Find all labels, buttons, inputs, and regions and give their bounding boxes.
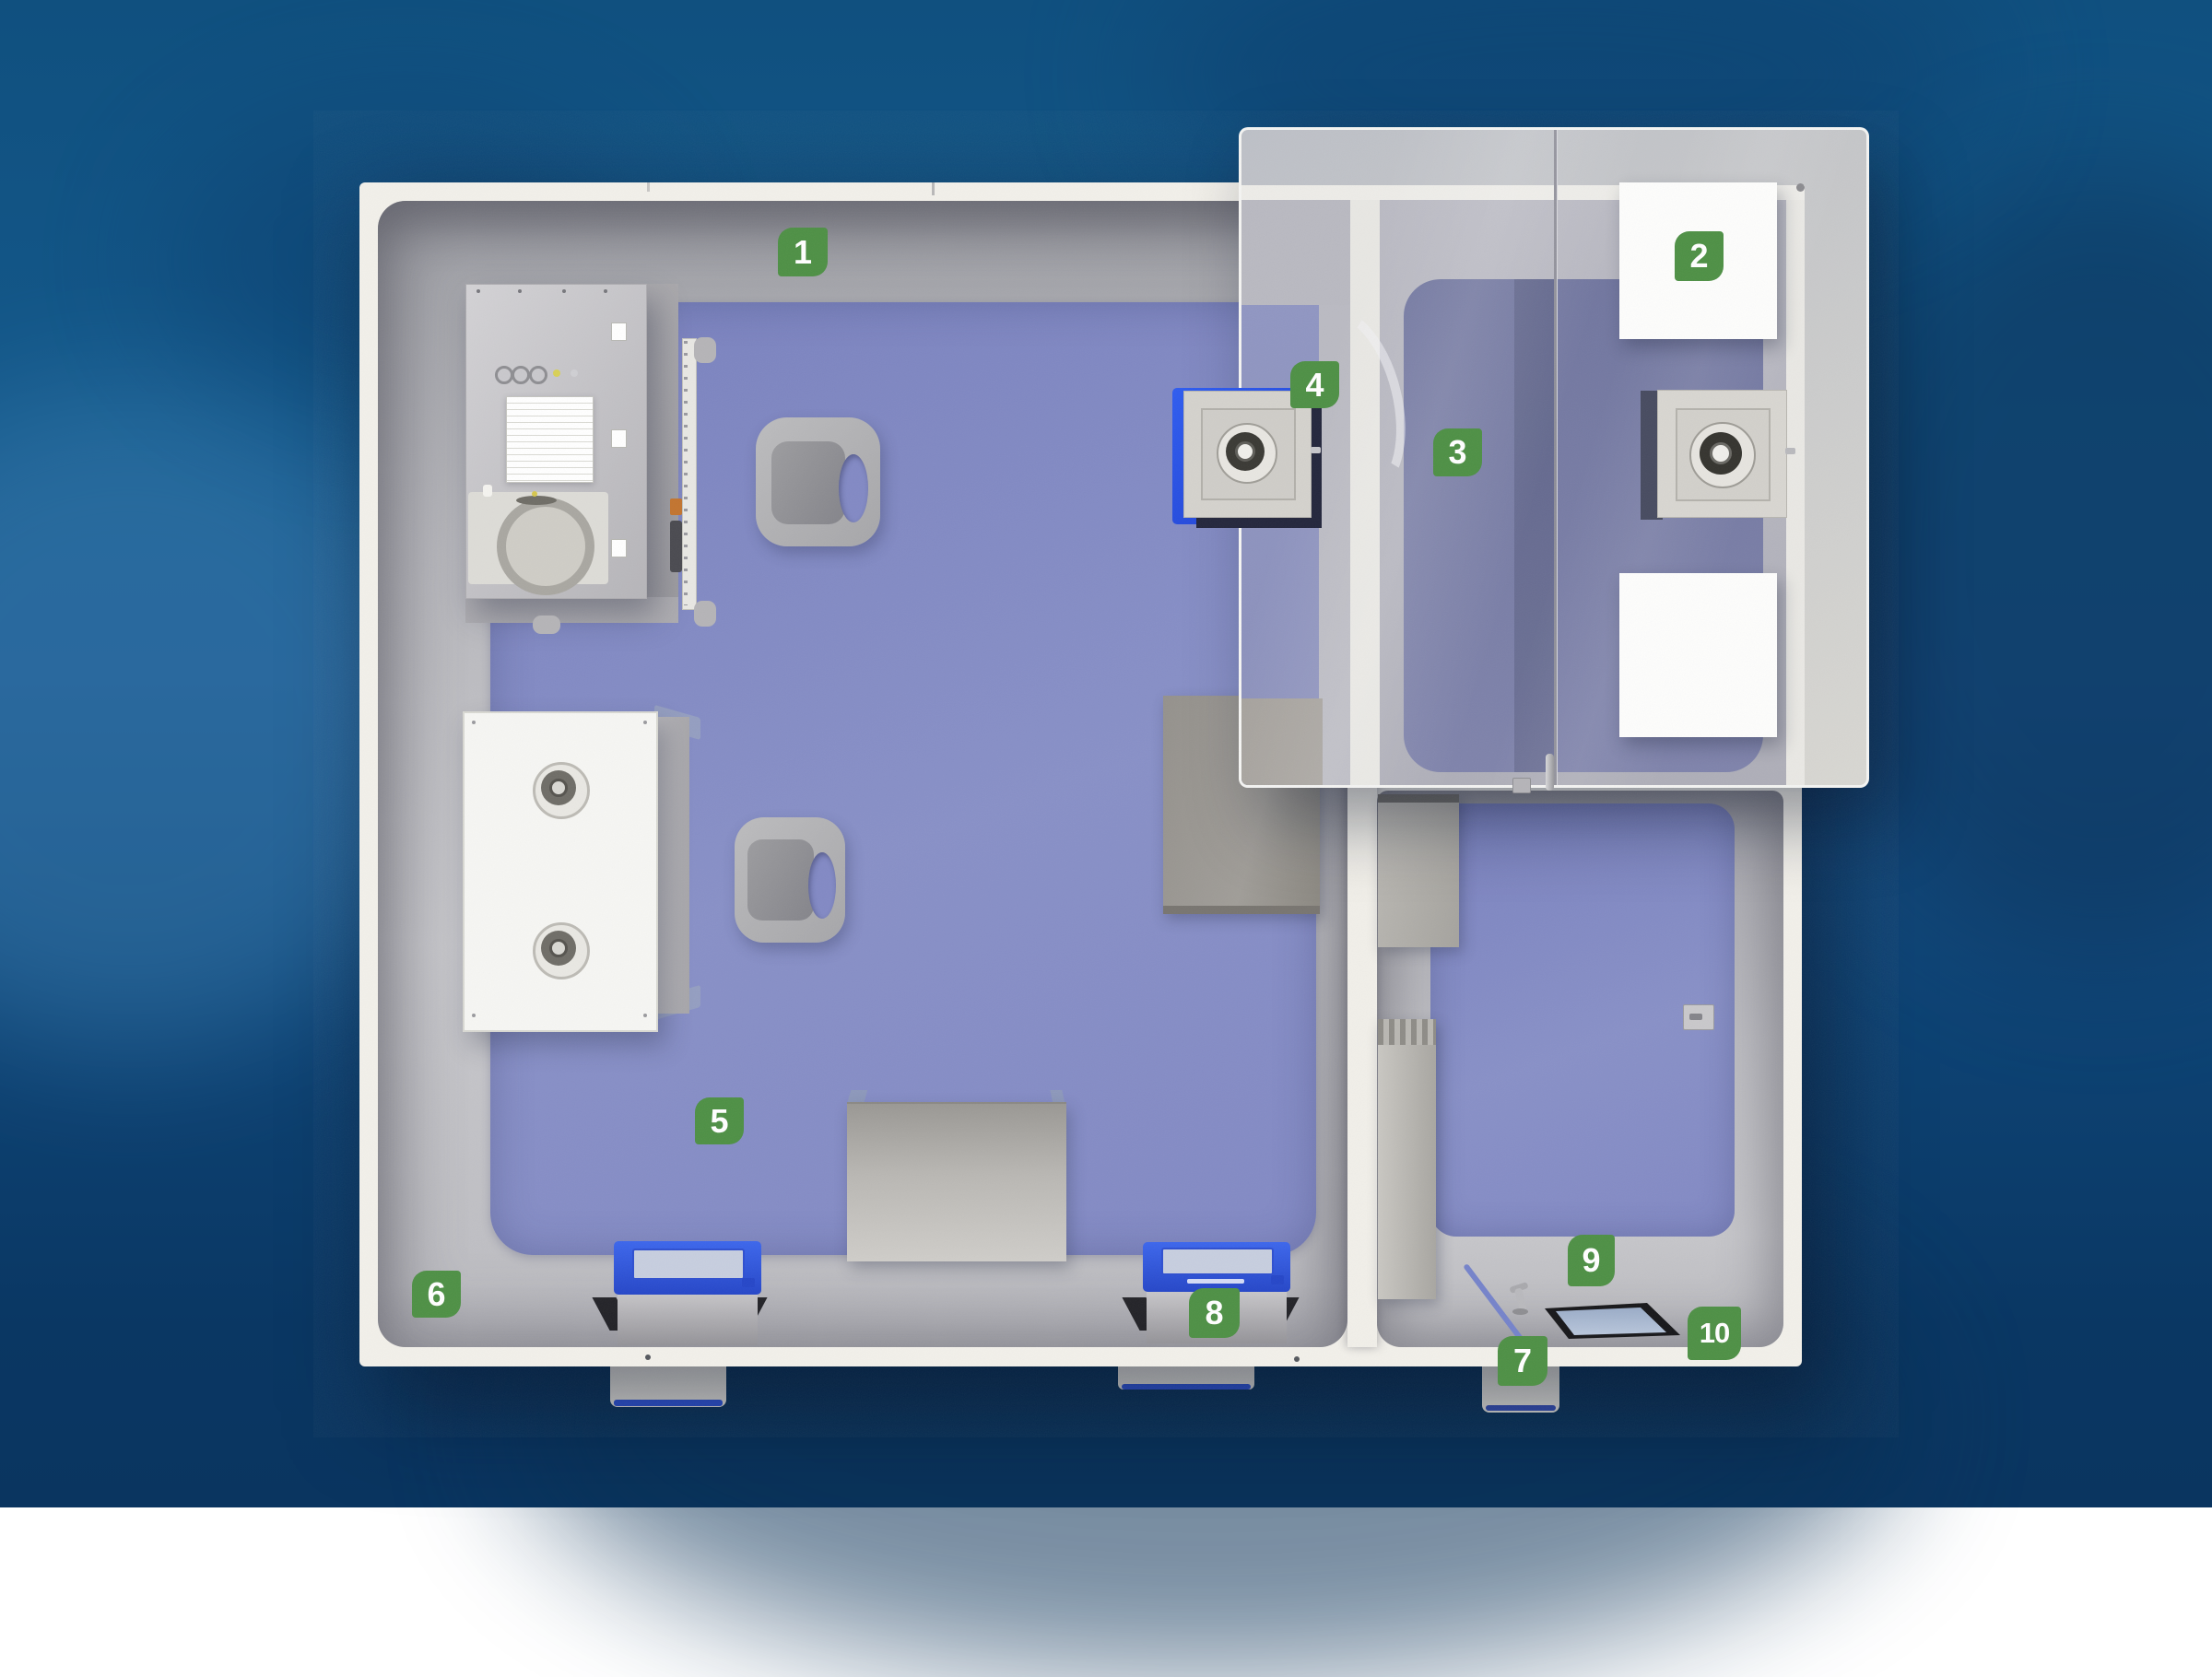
callout-number: 9 [1582, 1241, 1600, 1280]
ahu-screw [518, 289, 522, 293]
ahu-rail-ticks [684, 341, 688, 605]
bench-screw [472, 721, 476, 724]
ahu-foot [694, 337, 716, 363]
ffu-fan-hub [1710, 442, 1732, 464]
bench-screw [643, 721, 647, 724]
ahu-slot [670, 521, 682, 572]
ahu-mount-plate [611, 429, 627, 448]
callout-number: 2 [1689, 237, 1708, 276]
ffu-fan-hub [1235, 441, 1255, 462]
floor-window [1539, 1297, 1687, 1347]
ahu-blower-lip [516, 496, 557, 505]
ahu-indicator [532, 491, 537, 497]
locker-top-edge [1378, 794, 1459, 803]
floor-dot [645, 1354, 651, 1360]
callout-badge-2: 2 [1675, 231, 1724, 281]
ahu-indicator [553, 369, 560, 377]
callout-badge-9: 9 [1568, 1235, 1615, 1286]
ahu-screw [562, 289, 566, 293]
glass-edge-hinge [1512, 778, 1531, 793]
step-tab-blue-edge [614, 1400, 723, 1406]
ahu-filter-grille [506, 396, 594, 483]
callout-badge-3: 3 [1433, 428, 1482, 476]
callout-number: 6 [427, 1275, 445, 1314]
ahu-blower-inlet [497, 498, 594, 595]
fan-filter-unit [1172, 386, 1324, 534]
sink-drain [549, 939, 568, 957]
ahu-mount-plate [611, 322, 627, 341]
callout-number: 8 [1205, 1294, 1223, 1332]
box-latch-notch [742, 1278, 755, 1287]
floor-dot [1294, 1356, 1300, 1362]
stool-seat [747, 839, 814, 921]
box-brand-mark [1187, 1279, 1244, 1284]
ahu-foot [694, 601, 716, 627]
ahu-foot [533, 616, 560, 634]
wall-tick [932, 182, 935, 195]
ahu-screw [477, 289, 480, 293]
ahu-screw [604, 289, 607, 293]
lab-stool [735, 817, 845, 943]
bench-screw [472, 1014, 476, 1017]
table-top [847, 1102, 1066, 1261]
wall-latch [1683, 1004, 1714, 1030]
step-tab-blue-edge [1122, 1384, 1251, 1390]
callout-number: 10 [1700, 1317, 1729, 1350]
callout-badge-5: 5 [695, 1097, 744, 1144]
bench-side-panel [653, 717, 689, 1014]
ahu-knob [512, 366, 530, 384]
callout-badge-6: 6 [412, 1271, 461, 1318]
box-latch-notch [1271, 1275, 1284, 1284]
ante-room-cabinet [1378, 1019, 1436, 1299]
callout-number: 4 [1305, 366, 1324, 405]
render-stage: 1 2 3 4 5 6 7 8 9 10 [0, 0, 2212, 1507]
box-top-window [1161, 1248, 1274, 1275]
callout-badge-8: 8 [1189, 1288, 1240, 1338]
ante-room-locker [1378, 794, 1459, 947]
ahu-bottle [483, 485, 492, 497]
callout-number: 7 [1513, 1342, 1532, 1380]
step-tab-blue-edge [1486, 1405, 1556, 1411]
glass-edge-rod [1546, 754, 1554, 791]
callout-number: 3 [1448, 433, 1466, 472]
callout-number: 5 [710, 1102, 728, 1141]
stool-hole [839, 454, 868, 522]
glass-corner-screw [1796, 183, 1805, 192]
glass-hazy-floor-left [1241, 200, 1350, 305]
callout-badge-7: 7 [1498, 1336, 1547, 1386]
stool-hole [808, 852, 836, 919]
callout-badge-1: 1 [778, 228, 828, 276]
wall-tick [647, 182, 650, 192]
ahu-bottom-face [465, 597, 678, 623]
ahu-knob [529, 366, 547, 384]
bench-screw [643, 1014, 647, 1017]
box-body [618, 1290, 758, 1345]
ffu-pin [1311, 447, 1321, 453]
latch-slot [1689, 1014, 1702, 1020]
sink-bench [463, 709, 704, 1030]
door-handle-base [1512, 1308, 1528, 1315]
cabinet-ribbed-top [1378, 1019, 1436, 1045]
stool-seat [771, 441, 845, 524]
ahu-indicator [571, 369, 578, 377]
ceiling-filler-panel [1619, 573, 1777, 737]
fan-filter-unit [1641, 389, 1795, 522]
bench-top [463, 711, 658, 1032]
lab-stool [756, 417, 880, 546]
exterior-step-tab [610, 1365, 726, 1407]
callout-badge-10: 10 [1688, 1307, 1741, 1360]
box-top-window [632, 1249, 745, 1280]
sink-drain [549, 779, 568, 797]
exterior-step-tab [1118, 1365, 1254, 1390]
callout-badge-4: 4 [1290, 361, 1339, 408]
small-table [847, 1090, 1066, 1260]
ahu-mount-plate [611, 539, 627, 557]
ffu-pin [1785, 448, 1795, 454]
desk-edge [1163, 906, 1320, 914]
pass-through-box [594, 1241, 762, 1345]
callout-number: 1 [794, 233, 812, 272]
ahu-unit [465, 284, 700, 638]
ahu-clamp [670, 498, 682, 515]
ahu-knob [495, 366, 513, 384]
